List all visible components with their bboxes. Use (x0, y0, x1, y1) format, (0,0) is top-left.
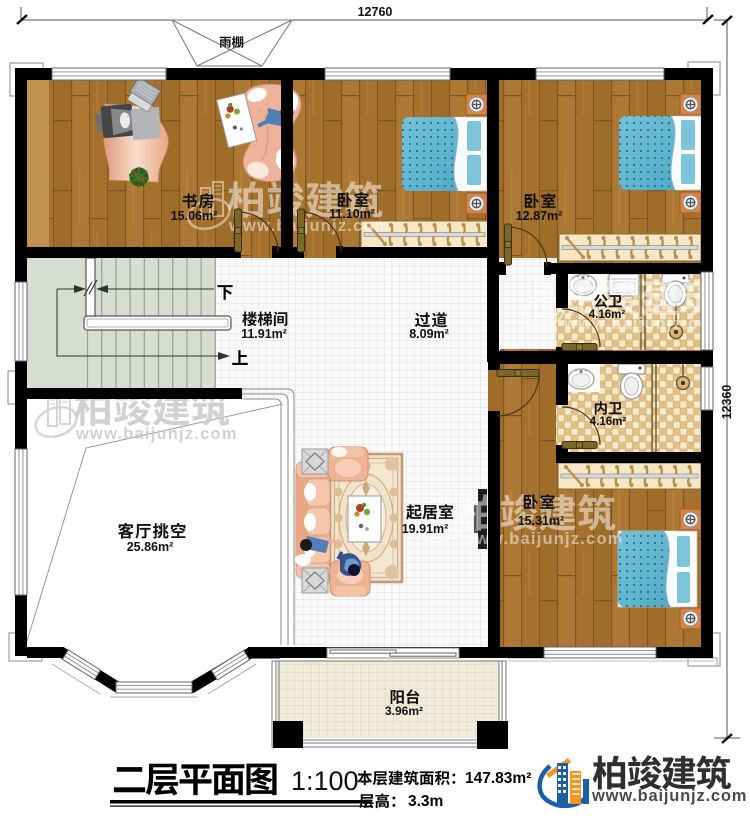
svg-text:11.10m²: 11.10m² (329, 207, 375, 221)
svg-text:www.baijunjz.com: www.baijunjz.com (461, 530, 624, 548)
svg-text:15.31m²: 15.31m² (518, 514, 565, 528)
svg-text:1:100: 1:100 (291, 766, 359, 796)
svg-text:147.83m²: 147.83m² (465, 770, 531, 787)
svg-text:12.87m²: 12.87m² (516, 209, 563, 223)
svg-text:8.09m²: 8.09m² (409, 327, 449, 341)
svg-text:3.3m: 3.3m (408, 793, 443, 810)
svg-text:19.91m²: 19.91m² (402, 522, 449, 536)
svg-text:12360: 12360 (720, 385, 734, 420)
svg-text:www.baijunjz.com: www.baijunjz.com (591, 787, 747, 805)
svg-text:4.16m²: 4.16m² (590, 416, 627, 428)
svg-text:15.06m²: 15.06m² (171, 209, 218, 223)
svg-text:4.16m²: 4.16m² (589, 309, 626, 321)
svg-text:www.baijunjz.com: www.baijunjz.com (75, 425, 238, 443)
svg-text:3.96m²: 3.96m² (385, 704, 423, 718)
svg-text:25.86m²: 25.86m² (127, 540, 174, 554)
svg-text:11.91m²: 11.91m² (241, 327, 287, 341)
svg-text:12760: 12760 (358, 5, 393, 19)
